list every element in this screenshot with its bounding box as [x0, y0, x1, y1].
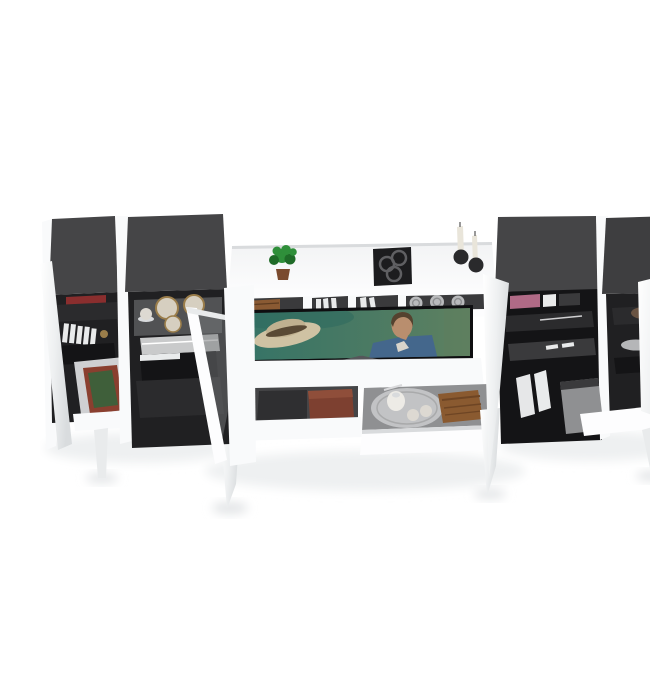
- product-photo: Entertainment wall unit product render S…: [40, 16, 650, 666]
- cabinet-c-top: [495, 216, 600, 292]
- teacup: [140, 308, 152, 320]
- white-spine-magazine: [543, 294, 556, 307]
- cup: [420, 405, 432, 417]
- screen-right-blur: [444, 308, 470, 356]
- cabinet-a-shelf-1: [54, 302, 117, 322]
- dark-spine-magazine: [559, 293, 580, 306]
- silver-tray: [371, 388, 443, 428]
- candle-base: [454, 250, 469, 265]
- shadow-leg-center-right: [474, 489, 506, 499]
- black-square-tray: Black square tray with three round dishe…: [373, 247, 412, 286]
- drawer-dark-box: [257, 390, 307, 420]
- cabinet-a-top: [49, 216, 118, 295]
- cup: [407, 409, 419, 421]
- pitcher-lid: [392, 393, 400, 398]
- leaf-cluster: [269, 255, 279, 265]
- cabinet-b-top: [125, 214, 227, 292]
- wood-grain-book: [438, 390, 483, 423]
- cabinet-a-leg: [94, 428, 108, 478]
- shadow-leg-d: [636, 471, 650, 481]
- gold-knob: [100, 330, 108, 338]
- pink-spine-magazine: [510, 294, 540, 309]
- plant-pot: [276, 269, 290, 280]
- shadow-leg-center-left: [212, 502, 248, 514]
- scene-canvas: Entertainment wall unit product render S…: [40, 16, 650, 666]
- candle-base: [469, 258, 484, 273]
- cabinet-c: Right cabinet with shelves, binders and …: [483, 216, 602, 478]
- leaf-cluster: [273, 247, 282, 256]
- leaf-cluster: [289, 248, 297, 256]
- leaf-cluster: [281, 245, 291, 255]
- drawer-left-open: Open drawer with dark box and red book: [237, 386, 363, 441]
- center-top-surface: [228, 242, 496, 297]
- drawer-right-open: Pulled-out drawer with silver tray, pitc…: [360, 384, 495, 455]
- drawer-left-front-flap: [237, 417, 363, 441]
